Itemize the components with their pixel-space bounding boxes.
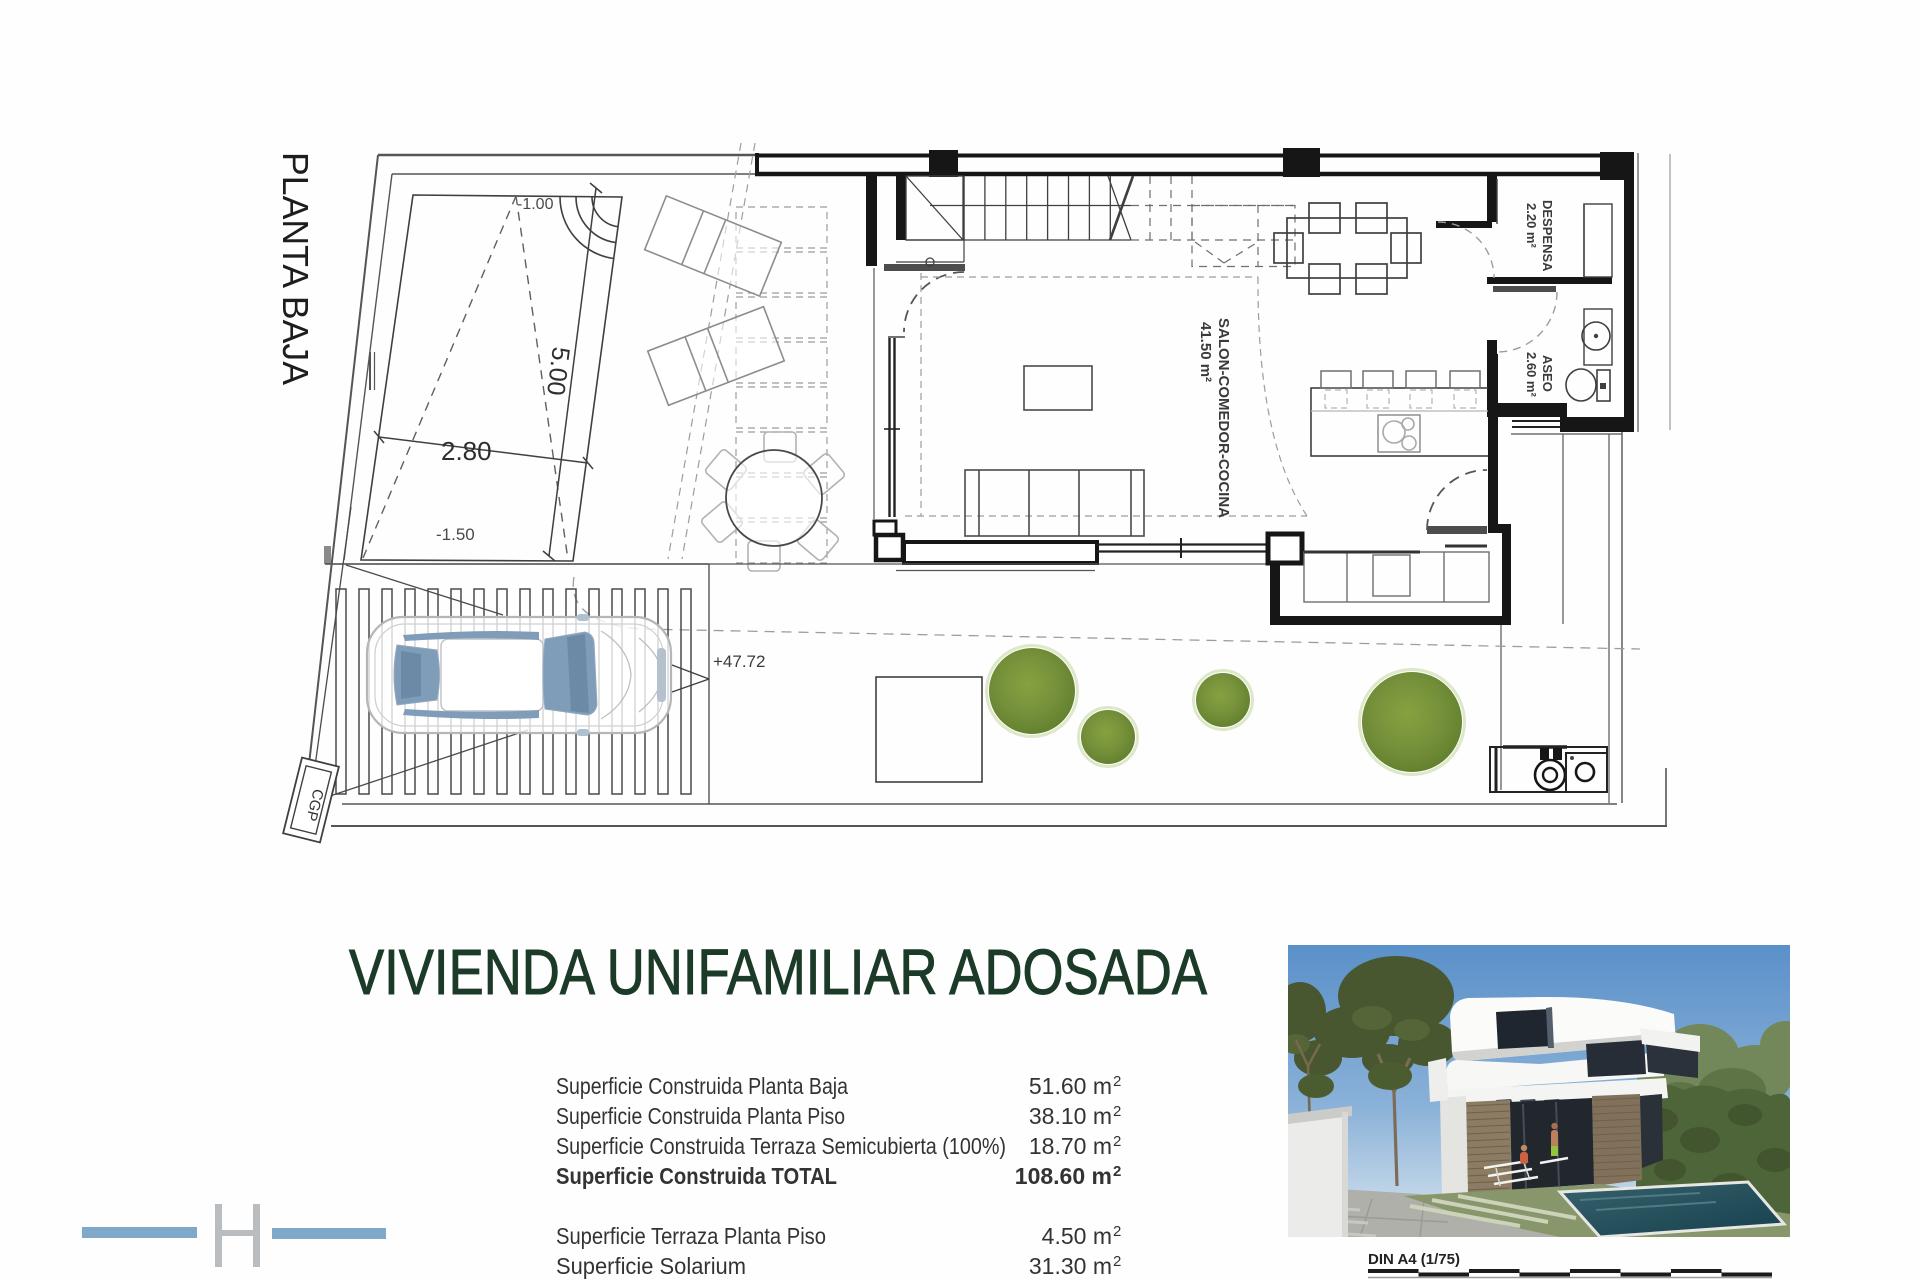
- svg-text:DESPENSA: DESPENSA: [1540, 200, 1555, 272]
- svg-text:Superficie Construida Terraza: Superficie Construida Terraza Semicubier…: [556, 1133, 1006, 1159]
- svg-text:2.80: 2.80: [441, 436, 492, 466]
- svg-text:Superficie Construida Planta B: Superficie Construida Planta Baja: [556, 1073, 848, 1099]
- svg-text:-1.00: -1.00: [517, 196, 554, 213]
- svg-text:Superficie Solarium: Superficie Solarium: [556, 1253, 746, 1279]
- svg-text:2: 2: [1113, 1133, 1121, 1150]
- svg-text:PLANTA BAJA: PLANTA BAJA: [275, 152, 316, 385]
- svg-text:31.30 m: 31.30 m: [1029, 1253, 1112, 1279]
- svg-text:18.70 m: 18.70 m: [1029, 1133, 1112, 1159]
- svg-text:Superficie Terraza Planta Piso: Superficie Terraza Planta Piso: [556, 1223, 826, 1249]
- svg-text:2.20 m²: 2.20 m²: [1524, 203, 1539, 248]
- svg-text:-1.50: -1.50: [436, 525, 475, 544]
- svg-text:SALON-COMEDOR-COCINA: SALON-COMEDOR-COCINA: [1215, 318, 1232, 518]
- svg-text:2: 2: [1113, 1253, 1121, 1270]
- svg-text:2: 2: [1113, 1073, 1121, 1090]
- svg-text:Superficie Construida Planta P: Superficie Construida Planta Piso: [556, 1103, 845, 1129]
- svg-text:41.50 m²: 41.50 m²: [1197, 322, 1214, 382]
- svg-text:ASEO: ASEO: [1540, 355, 1555, 392]
- svg-text:VIVIENDA UNIFAMILIAR ADOSADA: VIVIENDA UNIFAMILIAR ADOSADA: [349, 936, 1207, 1008]
- svg-text:51.60 m: 51.60 m: [1029, 1073, 1112, 1099]
- svg-text:2: 2: [1113, 1103, 1121, 1120]
- svg-text:2: 2: [1113, 1163, 1121, 1180]
- svg-text:Superficie Construida TOTAL: Superficie Construida TOTAL: [556, 1163, 837, 1189]
- svg-text:+47.72: +47.72: [713, 652, 765, 671]
- svg-text:2: 2: [1113, 1223, 1121, 1240]
- svg-text:4.50 m: 4.50 m: [1042, 1223, 1112, 1249]
- svg-text:2.60 m²: 2.60 m²: [1524, 352, 1539, 397]
- svg-text:108.60 m: 108.60 m: [1015, 1163, 1112, 1189]
- svg-text:38.10 m: 38.10 m: [1029, 1103, 1112, 1129]
- svg-text:DIN A4 (1/75): DIN A4 (1/75): [1368, 1251, 1460, 1268]
- svg-text:5.00: 5.00: [541, 345, 575, 397]
